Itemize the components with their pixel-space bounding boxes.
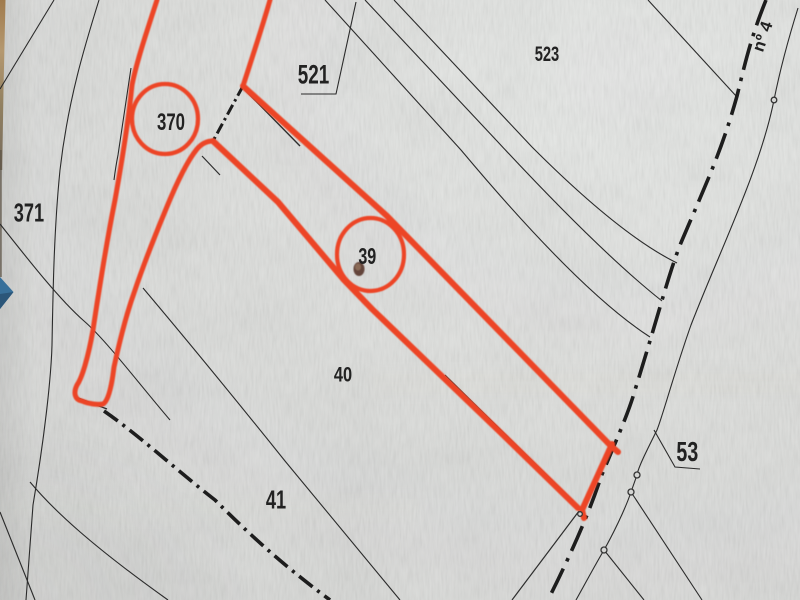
- svg-text:523: 523: [535, 42, 560, 65]
- svg-text:40: 40: [334, 363, 352, 386]
- svg-text:521: 521: [298, 59, 330, 89]
- svg-text:39: 39: [358, 244, 376, 269]
- svg-text:53: 53: [676, 437, 698, 468]
- svg-text:370: 370: [157, 109, 185, 136]
- svg-text:371: 371: [14, 198, 44, 227]
- svg-text:41: 41: [266, 485, 286, 514]
